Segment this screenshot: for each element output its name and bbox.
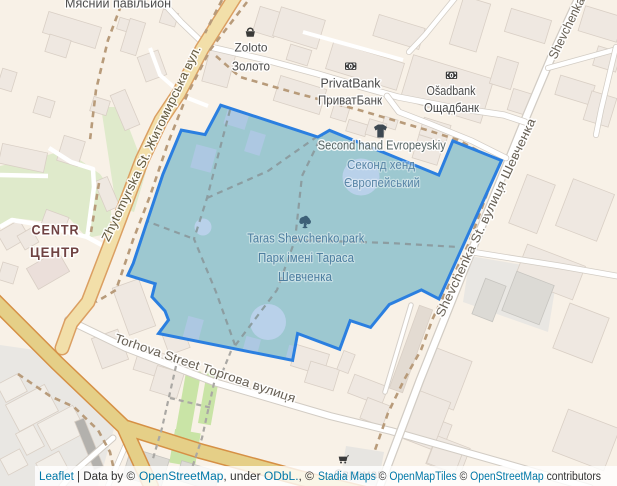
svg-text:Ощадбанк: Ощадбанк (424, 101, 479, 115)
svg-text:ЦЕНТР: ЦЕНТР (30, 245, 80, 260)
svg-text:Золото: Золото (232, 59, 270, 74)
svg-text:Zoloto: Zoloto (235, 41, 268, 55)
svg-text:Ošadbank: Ošadbank (427, 84, 477, 98)
svg-text:Мясний павільйон: Мясний павільйон (65, 0, 171, 11)
svg-text:Секонд хенд: Секонд хенд (347, 158, 416, 172)
svg-text:Taras Shevchenko park: Taras Shevchenko park (247, 232, 365, 246)
svg-text:Шевченка: Шевченка (278, 270, 332, 284)
svg-text:CENTR: CENTR (32, 223, 80, 238)
svg-text:Leaflet | Data by ©: Leaflet | Data by © (39, 471, 136, 483)
svg-text:Stadia Maps © OpenMapTiles © O: Stadia Maps © OpenMapTiles © OpenStreetM… (318, 471, 601, 483)
svg-text:ПриватБанк: ПриватБанк (318, 94, 382, 108)
svg-text:PrivatBank: PrivatBank (321, 77, 382, 91)
svg-text:OpenStreetMap, under ODbL., ©: OpenStreetMap, under ODbL., © (139, 471, 315, 483)
svg-text:Second hand Evropeyskiy: Second hand Evropeyskiy (318, 139, 447, 153)
svg-text:Парк імені Тараса: Парк імені Тараса (258, 251, 354, 265)
svg-text:Європейський: Європейський (344, 176, 420, 190)
